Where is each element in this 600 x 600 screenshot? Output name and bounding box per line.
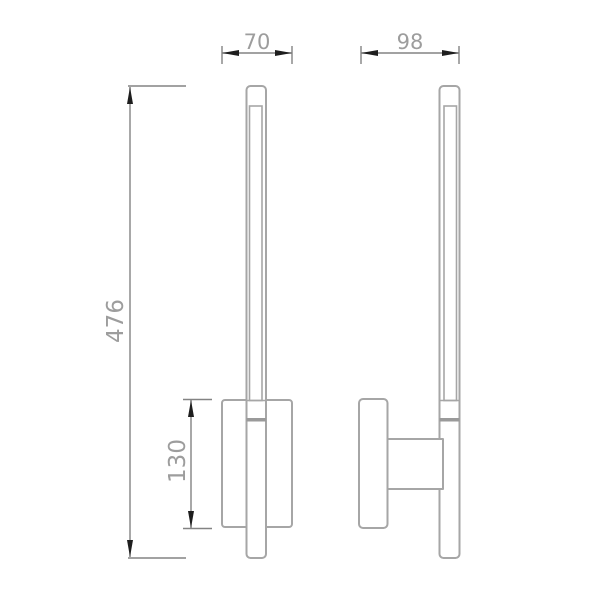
dim476-arrow-up-icon (127, 87, 133, 104)
side-mounting-arm-outline (388, 439, 444, 489)
front-view (222, 86, 292, 558)
side-joint-band (440, 418, 460, 422)
dim476-label: 476 (103, 299, 129, 343)
dimension-backplate-height: 130 (165, 400, 212, 529)
front-joint-band (247, 418, 267, 422)
dim130-arrow-up-icon (188, 400, 194, 417)
dimension-overall-height: 476 (103, 86, 186, 558)
dimension-backplate-width: 70 (222, 30, 292, 64)
dim130-arrow-down-icon (188, 511, 194, 528)
wall-lamp-dimension-drawing: 70 98 476 130 (0, 0, 600, 600)
dim70-label: 70 (244, 30, 271, 54)
dim70-arrow-right-icon (275, 50, 292, 56)
dim98-label: 98 (397, 30, 424, 54)
dim476-arrow-down-icon (127, 540, 133, 557)
dim98-arrow-right-icon (442, 50, 459, 56)
dimension-overall-depth: 98 (361, 30, 459, 64)
technical-drawing-canvas: 70 98 476 130 (0, 0, 600, 600)
dim130-label: 130 (165, 439, 191, 483)
dim98-arrow-left-icon (361, 50, 378, 56)
dim70-arrow-left-icon (222, 50, 239, 56)
side-backplate-outline (359, 399, 388, 528)
side-view (359, 86, 460, 558)
